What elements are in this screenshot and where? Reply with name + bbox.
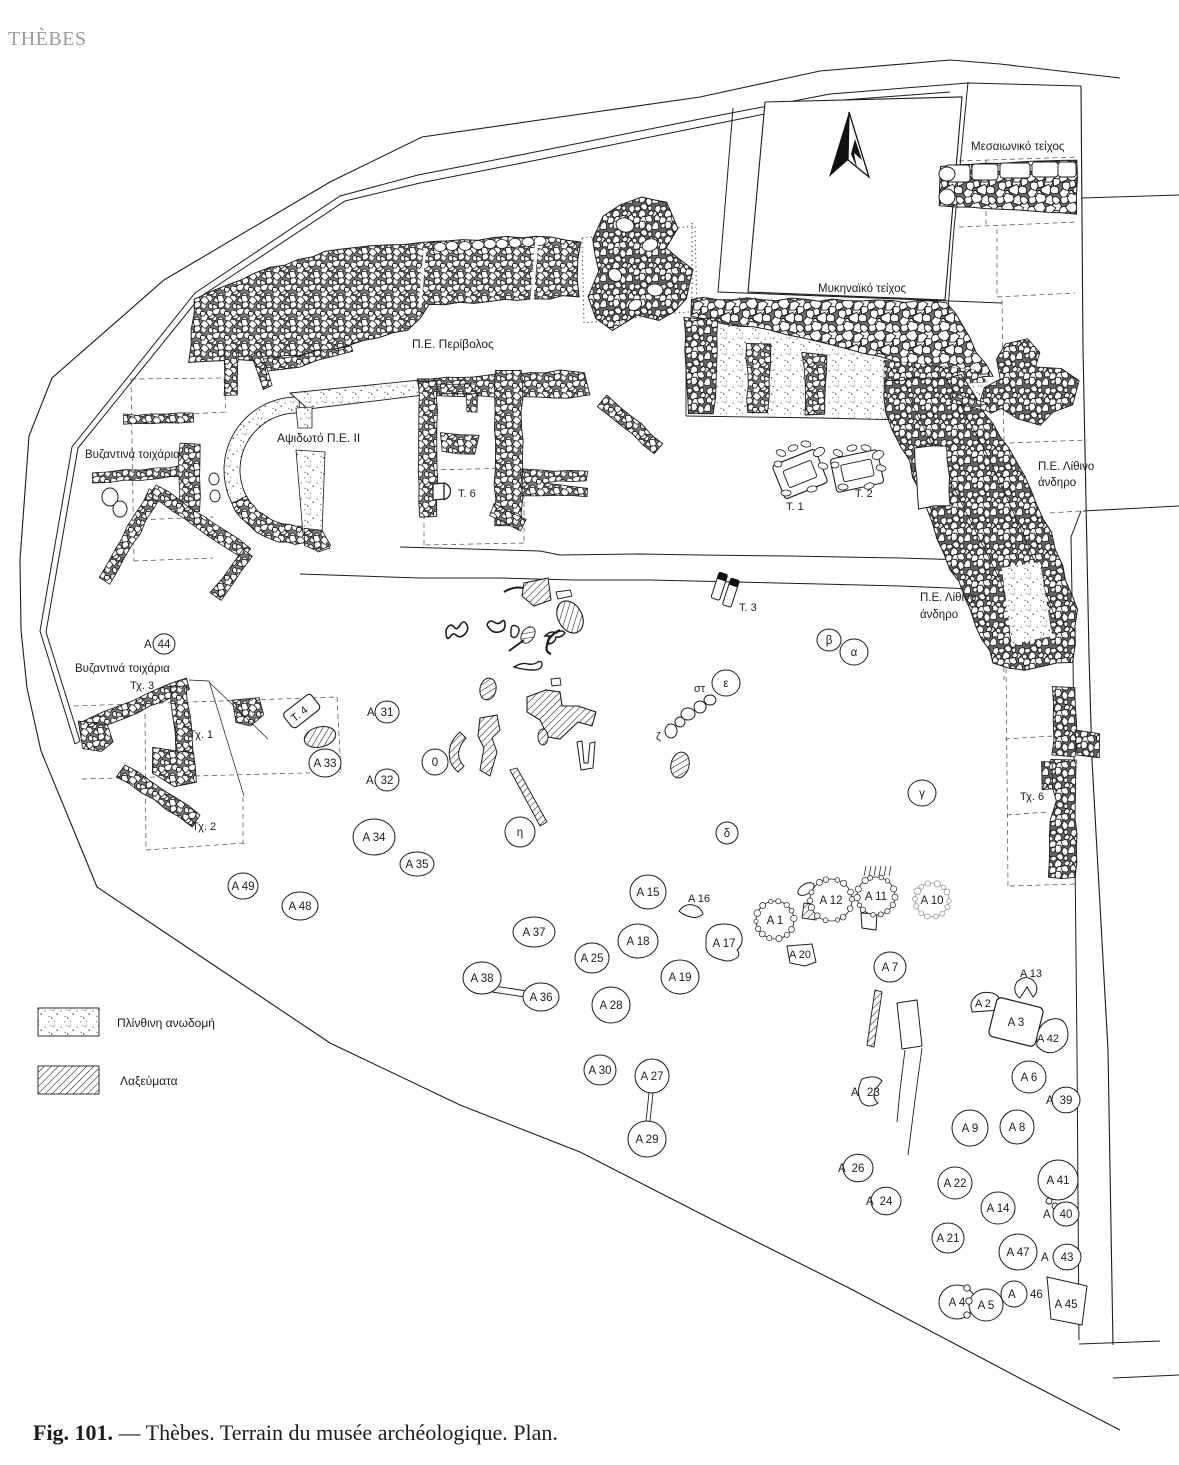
svg-text:α: α — [851, 647, 858, 659]
svg-text:γ: γ — [919, 788, 925, 800]
svg-text:A 6: A 6 — [1021, 1072, 1038, 1084]
svg-text:A 2: A 2 — [975, 998, 991, 1010]
svg-text:A 42: A 42 — [1037, 1033, 1059, 1045]
svg-text:A: A — [838, 1163, 846, 1175]
svg-text:Βυζαντινά τοιχάρια: Βυζαντινά τοιχάρια — [85, 449, 180, 461]
svg-text:Τχ. 6: Τχ. 6 — [1020, 791, 1044, 803]
svg-text:A 9: A 9 — [962, 1123, 979, 1135]
svg-text:Π.Ε. Λίθινο: Π.Ε. Λίθινο — [1038, 461, 1094, 473]
svg-text:A 48: A 48 — [288, 901, 311, 913]
svg-text:στ: στ — [694, 683, 706, 695]
svg-text:Μεσαιωνικό τείχος: Μεσαιωνικό τείχος — [971, 141, 1065, 153]
svg-text:δ: δ — [724, 828, 730, 840]
svg-text:A 18: A 18 — [626, 936, 649, 948]
svg-text:A 38: A 38 — [470, 973, 493, 985]
svg-text:46: 46 — [1030, 1289, 1043, 1301]
svg-text:A: A — [1008, 1289, 1016, 1301]
svg-text:A 35: A 35 — [405, 859, 428, 871]
svg-text:A: A — [1041, 1252, 1049, 1264]
svg-text:A 15: A 15 — [636, 887, 659, 899]
svg-text:A 30: A 30 — [588, 1065, 611, 1077]
svg-text:24: 24 — [880, 1196, 893, 1208]
svg-text:T. 1: T. 1 — [786, 501, 804, 513]
svg-text:A: A — [366, 775, 374, 787]
svg-text:A 19: A 19 — [668, 972, 691, 984]
svg-text:A 1: A 1 — [767, 915, 784, 927]
svg-text:A: A — [1043, 1209, 1051, 1221]
svg-text:A 45: A 45 — [1054, 1299, 1077, 1311]
svg-text:26: 26 — [852, 1163, 865, 1175]
svg-text:A 13: A 13 — [1020, 968, 1042, 980]
svg-text:Τχ. 2: Τχ. 2 — [192, 821, 216, 833]
svg-text:η: η — [517, 827, 523, 839]
svg-text:THÈBES: THÈBES — [8, 27, 87, 50]
svg-text:A: A — [1046, 1095, 1054, 1107]
svg-text:Βυζαντινά τοιχάρια: Βυζαντινά τοιχάρια — [75, 663, 170, 675]
svg-text:ζ: ζ — [656, 731, 661, 743]
svg-text:T. 3: T. 3 — [739, 602, 757, 614]
svg-text:A 49: A 49 — [231, 881, 254, 893]
svg-text:A 4: A 4 — [949, 1297, 966, 1309]
svg-text:β: β — [826, 635, 833, 647]
svg-text:άνδηρο: άνδηρο — [1038, 477, 1076, 489]
svg-text:A 8: A 8 — [1009, 1122, 1026, 1134]
svg-text:Τχ. 1: Τχ. 1 — [189, 729, 213, 741]
svg-text:A 7: A 7 — [882, 962, 899, 974]
svg-text:Αψιδωτό Π.Ε. II: Αψιδωτό Π.Ε. II — [277, 431, 360, 445]
svg-text:A 28: A 28 — [599, 1000, 622, 1012]
svg-text:Π.Ε. Περίβολος: Π.Ε. Περίβολος — [412, 337, 494, 351]
svg-text:A 22: A 22 — [943, 1178, 966, 1190]
svg-text:άνδηρο: άνδηρο — [920, 609, 958, 621]
svg-text:T. 2: T. 2 — [855, 488, 873, 500]
svg-text:Μυκηναϊκό τείχος: Μυκηναϊκό τείχος — [818, 283, 907, 295]
svg-text:A 37: A 37 — [522, 927, 545, 939]
svg-text:A 27: A 27 — [640, 1071, 663, 1083]
svg-text:31: 31 — [381, 707, 394, 719]
svg-text:23: 23 — [867, 1087, 880, 1099]
svg-text:A 41: A 41 — [1046, 1175, 1069, 1187]
svg-text:Τχ. 3: Τχ. 3 — [130, 680, 154, 692]
svg-text:Πλίνθινη ανωδομή: Πλίνθινη ανωδομή — [117, 1016, 215, 1030]
svg-text:44: 44 — [158, 639, 171, 651]
svg-text:A 3: A 3 — [1008, 1017, 1025, 1029]
svg-text:A: A — [866, 1196, 874, 1208]
svg-text:A 10: A 10 — [920, 895, 943, 907]
svg-text:A 29: A 29 — [635, 1134, 658, 1146]
svg-text:A 33: A 33 — [313, 758, 336, 770]
svg-text:39: 39 — [1060, 1095, 1073, 1107]
svg-text:A 14: A 14 — [986, 1203, 1010, 1215]
svg-text:A 36: A 36 — [529, 992, 552, 1004]
svg-text:40: 40 — [1060, 1209, 1073, 1221]
svg-text:A: A — [367, 707, 375, 719]
svg-text:A 17: A 17 — [712, 938, 735, 950]
svg-text:Λαξεύματα: Λαξεύματα — [120, 1074, 178, 1088]
svg-text:A 16: A 16 — [688, 893, 710, 905]
svg-text:A: A — [144, 639, 152, 651]
svg-text:ε: ε — [723, 678, 728, 690]
svg-text:A 12: A 12 — [819, 895, 842, 907]
svg-text:A 5: A 5 — [978, 1300, 995, 1312]
svg-text:A 11: A 11 — [865, 891, 887, 903]
svg-text:43: 43 — [1061, 1252, 1074, 1264]
svg-text:32: 32 — [381, 775, 394, 787]
svg-text:Fig. 101. — Thèbes. Terrain du: Fig. 101. — Thèbes. Terrain du musée arc… — [33, 1420, 558, 1445]
svg-text:A 34: A 34 — [362, 832, 386, 844]
svg-text:A 25: A 25 — [580, 953, 603, 965]
svg-text:A 47: A 47 — [1006, 1247, 1029, 1259]
svg-text:0: 0 — [432, 757, 438, 769]
svg-text:T. 6: T. 6 — [458, 488, 476, 500]
svg-text:A 21: A 21 — [936, 1233, 959, 1245]
svg-text:Π.Ε. Λίθινο: Π.Ε. Λίθινο — [920, 592, 976, 604]
svg-text:A 20: A 20 — [789, 949, 811, 961]
svg-text:A: A — [851, 1087, 859, 1099]
